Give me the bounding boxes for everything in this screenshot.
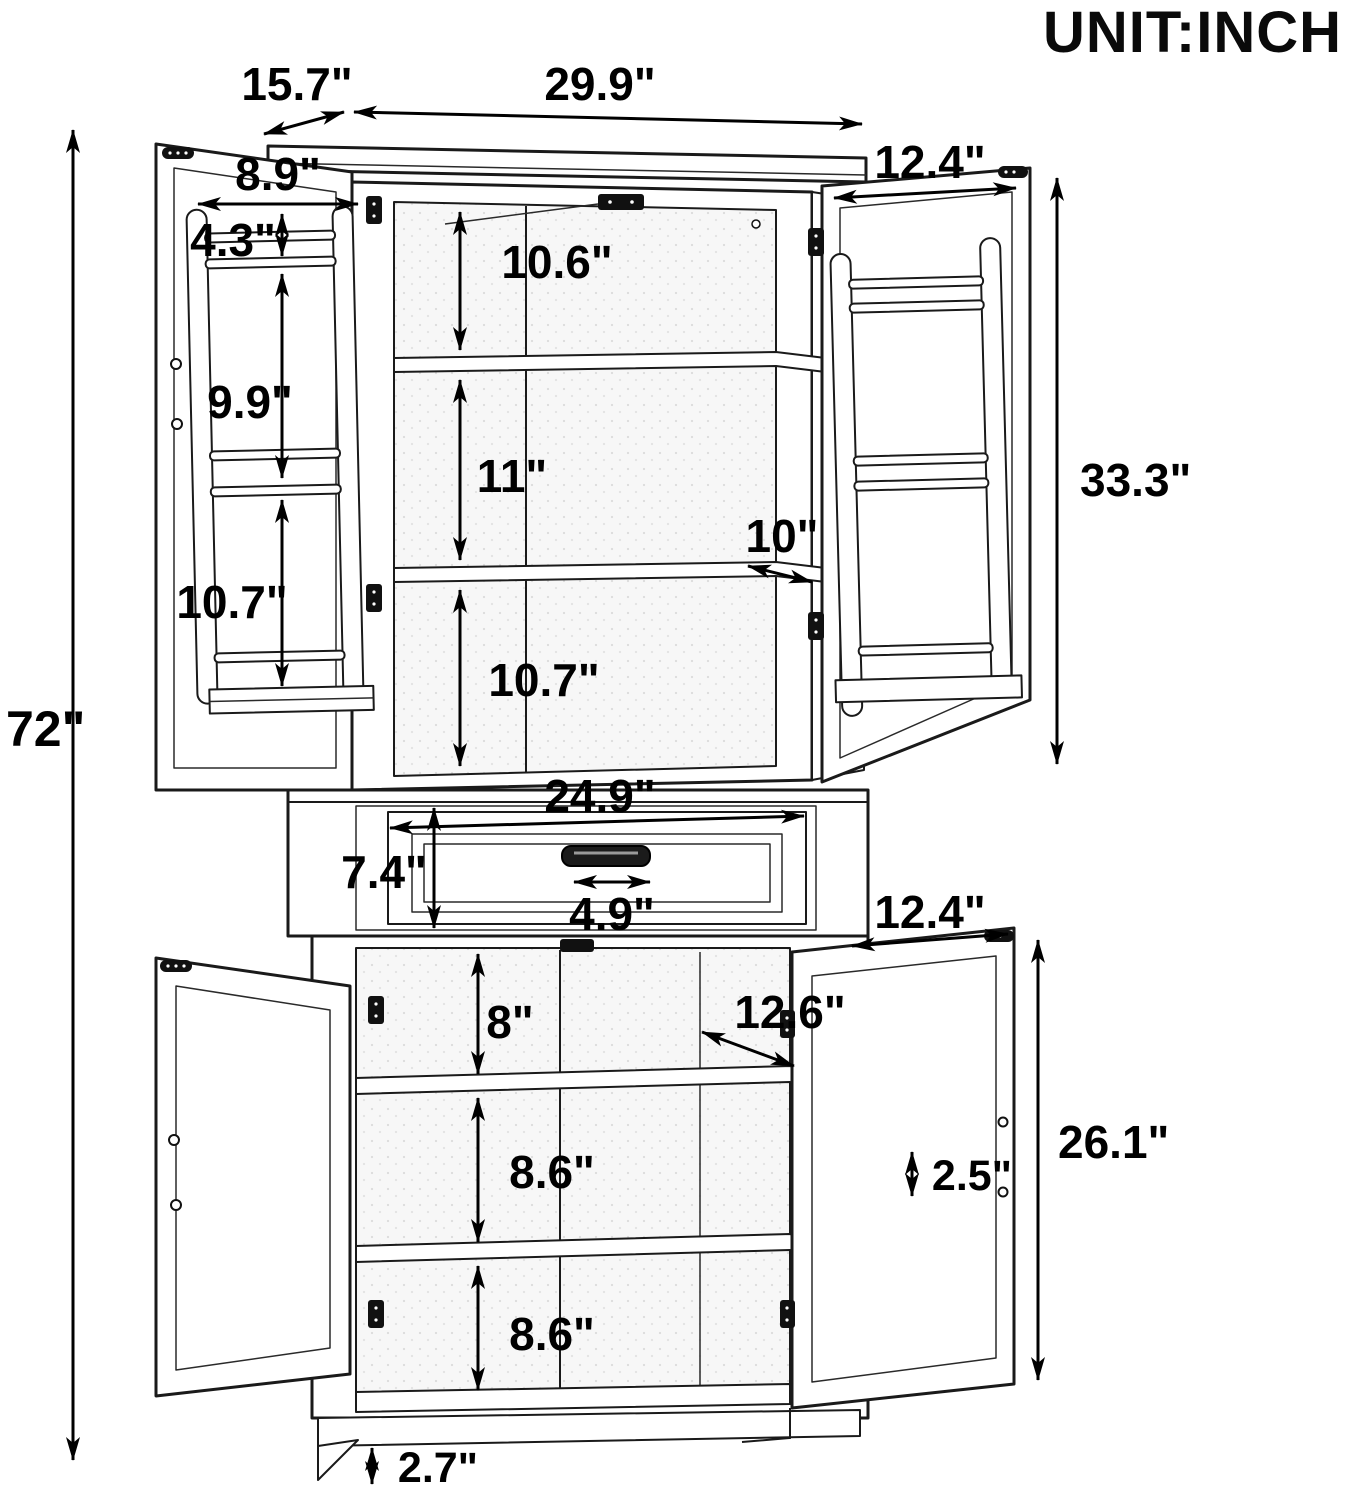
dim-label-top-width: 29.9" xyxy=(544,58,655,110)
hinge xyxy=(808,612,824,640)
dim-label-drawer-height: 7.4" xyxy=(341,846,427,898)
hinge xyxy=(808,228,824,256)
dim-top-width: 29.9" xyxy=(354,58,862,124)
hinge xyxy=(366,196,382,224)
upper-latch xyxy=(598,194,644,210)
latch-screw-dot xyxy=(608,200,612,204)
dim-base-height: 2.7" xyxy=(372,1444,478,1492)
dim-rack-top-gap: 4.3" xyxy=(190,214,282,266)
dim-upper-door-height: 33.3" xyxy=(1057,178,1191,764)
dim-lower-door-height: 26.1" xyxy=(1038,940,1169,1380)
drawer-handle xyxy=(562,846,650,866)
door-screw xyxy=(172,419,182,429)
hinge-dot xyxy=(372,202,375,205)
door-screw xyxy=(169,1135,179,1145)
rack-bar xyxy=(214,650,344,662)
door-screw xyxy=(171,1200,181,1210)
dim-label-rack-bottom-gap: 10.7" xyxy=(176,576,287,628)
hinge-dot xyxy=(374,1002,377,1005)
hinge-dot xyxy=(814,618,817,621)
dim-arrow-top-depth xyxy=(264,112,344,134)
hinge-dot xyxy=(182,964,185,967)
hinge-dot xyxy=(1004,170,1007,173)
dim-label-upper-door-width: 12.4" xyxy=(874,136,985,188)
hinge-dot xyxy=(785,1318,788,1321)
dim-label-handle-width: 4.9" xyxy=(569,888,655,940)
hinge-dot xyxy=(814,630,817,633)
hinge-dot xyxy=(166,964,169,967)
dim-label-lower-shelf-gap: 2.5" xyxy=(932,1152,1012,1200)
hinge-dot xyxy=(168,151,171,154)
hinge-dot xyxy=(174,964,177,967)
dim-lower-door-width: 12.4" xyxy=(852,886,1008,946)
hinge-dot xyxy=(372,214,375,217)
hinge-dot xyxy=(814,234,817,237)
dim-label-rack-mid-gap: 9.9" xyxy=(207,376,293,428)
shelf-pin-hole xyxy=(752,220,760,228)
hinge-dot xyxy=(372,602,375,605)
dim-label-overall-height: 72" xyxy=(6,701,85,757)
dim-label-upper-middle-space: 11" xyxy=(477,450,547,502)
cabinet-dimension-drawing: UNIT:INCH 72" 15.7" 29.9" xyxy=(0,0,1351,1500)
unit-label: UNIT:INCH xyxy=(1043,0,1342,65)
lower-left-door xyxy=(156,958,384,1396)
lower-left-door-panel xyxy=(156,958,350,1396)
door-screw xyxy=(171,359,181,369)
base-left-foot xyxy=(318,1440,358,1480)
dim-label-upper-bottom-space: 10.7" xyxy=(488,654,599,706)
upper-right-door xyxy=(808,166,1030,782)
drawer-handle-bar xyxy=(562,846,650,866)
hinge xyxy=(780,1300,795,1328)
rack-bar xyxy=(211,485,341,497)
hinge-dot xyxy=(1012,170,1015,173)
hinge-dot xyxy=(374,1318,377,1321)
rack-bottom-shelf xyxy=(835,675,1022,702)
hinge-dot xyxy=(184,151,187,154)
dim-arrow-top-width xyxy=(354,112,862,124)
dim-label-top-depth: 15.7" xyxy=(241,58,352,110)
hinge-dot xyxy=(176,151,179,154)
dim-label-lower-middle-space: 8.6" xyxy=(509,1146,595,1198)
dim-label-lower-top-space: 8" xyxy=(486,996,533,1048)
counter-top xyxy=(268,146,866,182)
dim-label-lower-shelf-depth: 12.6" xyxy=(734,986,845,1038)
dim-label-drawer-width: 24.9" xyxy=(544,770,655,822)
dim-handle-width: 4.9" xyxy=(569,882,655,940)
hinge-dot xyxy=(374,1014,377,1017)
latch-screw-dot xyxy=(630,200,634,204)
counter-slab xyxy=(268,146,866,182)
dim-top-depth: 15.7" xyxy=(241,58,352,134)
hinge xyxy=(366,584,382,612)
hinge xyxy=(368,1300,384,1328)
door-screw xyxy=(999,1118,1008,1127)
dim-label-lower-door-width: 12.4" xyxy=(874,886,985,938)
dim-label-base-height: 2.7" xyxy=(398,1444,478,1492)
dim-label-lower-bottom-space: 8.6" xyxy=(509,1308,595,1360)
dimension-diagram-page: UNIT:INCH 72" 15.7" 29.9" xyxy=(0,0,1351,1500)
dim-label-rack-width: 8.9" xyxy=(235,148,321,200)
hinge-dot xyxy=(374,1306,377,1309)
hinge xyxy=(368,996,384,1024)
rack-bar xyxy=(210,449,340,461)
dim-overall-height: 72" xyxy=(6,130,85,1460)
dim-label-rack-top-gap: 4.3" xyxy=(190,214,276,266)
dim-label-upper-top-space: 10.6" xyxy=(501,236,612,288)
hinge-dot xyxy=(814,246,817,249)
lower-latch xyxy=(560,939,594,952)
dim-label-lower-door-height: 26.1" xyxy=(1058,1116,1169,1168)
hinge-dot xyxy=(372,590,375,593)
dim-label-upper-door-height: 33.3" xyxy=(1080,454,1191,506)
hinge-dot xyxy=(785,1306,788,1309)
dim-label-upper-shelf-depth: 10" xyxy=(746,510,819,562)
